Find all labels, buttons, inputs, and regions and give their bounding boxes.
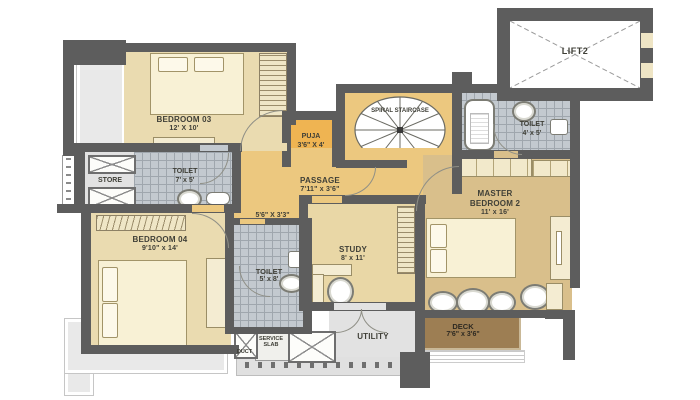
wall-left-upper: [63, 40, 74, 156]
utility-name: UTILITY: [340, 332, 406, 342]
toilet-top-label: TOILET 7' x 5': [155, 168, 215, 186]
bedroom03-label: BEDROOM 03 12' X 10': [128, 115, 240, 134]
passage-label: PASSAGE 7'11" x 3'6": [260, 176, 380, 195]
bedroom03-name: BEDROOM 03: [128, 115, 240, 125]
store-name: STORE: [85, 177, 135, 186]
toilet-top-door-gap: [200, 145, 228, 151]
study-dims: 8' x 11': [308, 255, 398, 264]
duct-label: DUCT: [231, 349, 258, 355]
master-bedroom-label: MASTER BEDROOM 2 11' x 16': [464, 189, 526, 218]
lift-door-gap-1: [641, 33, 653, 48]
store-shelf-top: [88, 155, 136, 174]
passage-dims: 7'11" x 3'6": [260, 186, 380, 195]
dresser-handle: [556, 231, 562, 265]
master-pillow-1: [430, 224, 447, 248]
master-bedroom-name: MASTER BEDROOM 2: [464, 189, 526, 209]
bedroom03-dims: 12' X 10': [128, 125, 240, 134]
toilet-master-name: TOILET: [500, 121, 564, 130]
bedroom04-pillow-2: [102, 303, 118, 338]
study-wardrobe: [397, 206, 415, 274]
wall-toilet-mid-right: [303, 224, 312, 334]
master-closet-1: [458, 158, 532, 177]
floor-plan: BEDROOM 03 12' X 10' STORE TOILET 7' x 5…: [0, 0, 700, 400]
toilet-master-wc-icon: [512, 101, 536, 122]
deck-ledge: [423, 350, 525, 363]
wall-bedroom04-bottom: [81, 345, 239, 354]
puja-label: PUJA 3'6" X 4': [286, 133, 336, 151]
bedroom04-wardrobe: [96, 215, 186, 231]
utility-shaft-box: [288, 331, 336, 363]
service-slab-label: SERVICE SLAB: [254, 336, 288, 348]
inner-passage-dims: 5'6" X 3'3": [235, 212, 310, 221]
wall-deck-right-v: [563, 310, 575, 360]
puja-dims: 3'6" X 4': [286, 142, 336, 151]
spiral-staircase-name: SPIRAL STAIRCASE: [370, 108, 430, 115]
lift-door-gap-2: [641, 63, 653, 78]
toilet-mid-name: TOILET: [238, 267, 300, 276]
passage-name: PASSAGE: [260, 176, 380, 186]
study-desk-side: [312, 274, 324, 304]
bedroom03-pillow-2: [194, 57, 224, 72]
wall-toilet-mid-bottom: [225, 327, 312, 334]
wall-store-left: [74, 150, 85, 210]
deck-name: DECK: [423, 322, 503, 331]
toilet-mid-label: TOILET 5' x 8': [238, 267, 300, 285]
toilet-master-dims: 4' x 5': [500, 130, 564, 139]
bathtub-icon: [464, 99, 495, 151]
bedroom03-wardrobe: [259, 53, 287, 117]
wall-master-right: [570, 84, 580, 288]
master-pillow-2: [430, 249, 447, 273]
bedroom04-name: BEDROOM 04: [105, 235, 215, 245]
puja-name: PUJA: [286, 133, 336, 142]
service-slab-name: SERVICE SLAB: [254, 336, 288, 348]
master-wc-cistern: [546, 283, 563, 310]
wall-toilet-top-right: [232, 143, 241, 213]
study-door-gap: [312, 196, 342, 203]
duct-name: DUCT: [231, 349, 258, 355]
lift-name: LIFT2: [510, 46, 640, 57]
deck-dims: 7'6" x 3'6": [423, 331, 503, 340]
bedroom04-label: BEDROOM 04 9'10" x 14': [105, 235, 215, 254]
study-name: STUDY: [308, 245, 398, 255]
wall-bedroom04-left: [81, 212, 91, 354]
utility-label: UTILITY: [340, 332, 406, 342]
wall-stair-top: [341, 84, 462, 93]
wall-top: [124, 43, 296, 52]
spiral-staircase-label: SPIRAL STAIRCASE: [370, 108, 430, 115]
bedroom03-pillow-1: [158, 57, 188, 72]
bedroom04-door-gap: [192, 205, 224, 212]
wall-stair-left: [336, 84, 345, 168]
wall-master-bottom: [415, 310, 560, 318]
bedroom04-dims: 9'10" x 14': [105, 245, 215, 254]
deck-label: DECK 7'6" x 3'6": [423, 322, 503, 340]
master-bedroom-dims: 11' x 16': [464, 209, 526, 218]
toilet-mid-dims: 5' x 8': [238, 276, 300, 285]
store-label: STORE: [85, 177, 135, 186]
inner-passage-label: 5'6" X 3'3": [235, 212, 310, 221]
lift-label: LIFT2: [510, 46, 640, 57]
bathtub-mat: [470, 113, 489, 144]
wall-bedroom04-right: [225, 212, 234, 334]
wall-utility-block: [400, 352, 430, 388]
study-label: STUDY 8' x 11': [308, 245, 398, 264]
balcony-strip-left: [76, 55, 126, 155]
toilet-master-label: TOILET 4' x 5': [500, 121, 564, 139]
master-closet-2: [532, 160, 572, 177]
toilet-top-name: TOILET: [155, 168, 215, 177]
toilet-top-dims: 7' x 5': [155, 177, 215, 186]
bedroom04-pillow-1: [102, 267, 118, 302]
